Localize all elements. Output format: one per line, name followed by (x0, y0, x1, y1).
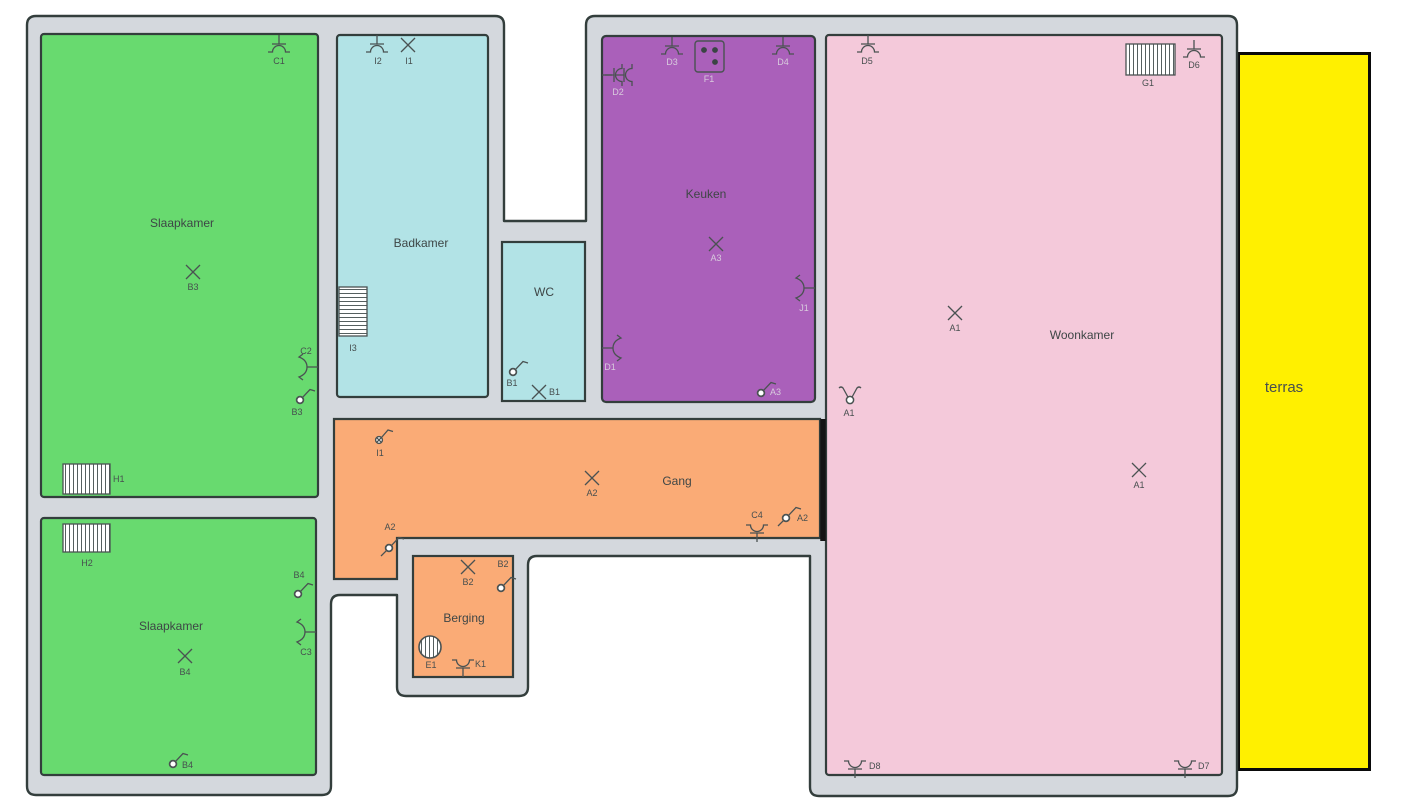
svg-text:D1: D1 (604, 362, 616, 372)
svg-text:WC: WC (534, 285, 554, 299)
svg-text:D8: D8 (869, 761, 881, 771)
svg-text:A2: A2 (384, 522, 395, 532)
svg-text:I2: I2 (374, 56, 382, 66)
svg-text:B3: B3 (291, 407, 302, 417)
svg-text:A3: A3 (710, 253, 721, 263)
svg-text:D4: D4 (777, 57, 789, 67)
svg-text:Woonkamer: Woonkamer (1050, 328, 1114, 342)
svg-text:B2: B2 (462, 577, 473, 587)
svg-text:K1: K1 (475, 659, 486, 669)
svg-text:A1: A1 (949, 323, 960, 333)
svg-text:D2: D2 (612, 87, 624, 97)
svg-text:Slaapkamer: Slaapkamer (150, 216, 214, 230)
svg-text:H2: H2 (81, 558, 93, 568)
svg-text:terras: terras (1265, 379, 1303, 396)
svg-text:J1: J1 (799, 303, 809, 313)
svg-text:B1: B1 (549, 387, 560, 397)
svg-text:Badkamer: Badkamer (394, 236, 449, 250)
svg-text:Gang: Gang (662, 474, 691, 488)
svg-text:D6: D6 (1188, 60, 1200, 70)
svg-text:C1: C1 (273, 56, 285, 66)
svg-text:B1: B1 (506, 378, 517, 388)
svg-text:B4: B4 (179, 667, 190, 677)
svg-text:E1: E1 (425, 660, 436, 670)
svg-text:Berging: Berging (443, 611, 484, 625)
svg-text:Slaapkamer: Slaapkamer (139, 619, 203, 633)
svg-text:G1: G1 (1142, 78, 1154, 88)
svg-text:F1: F1 (704, 74, 715, 84)
svg-text:B3: B3 (187, 282, 198, 292)
svg-text:I3: I3 (349, 343, 357, 353)
svg-text:D5: D5 (861, 56, 873, 66)
svg-text:C2: C2 (300, 346, 312, 356)
svg-text:A2: A2 (586, 488, 597, 498)
svg-text:I1: I1 (376, 448, 384, 458)
svg-text:A2: A2 (797, 513, 808, 523)
svg-text:H1: H1 (113, 474, 125, 484)
svg-text:C3: C3 (300, 647, 312, 657)
svg-text:A3: A3 (770, 387, 781, 397)
svg-text:A1: A1 (1133, 480, 1144, 490)
svg-text:D3: D3 (666, 57, 678, 67)
svg-text:I1: I1 (405, 56, 413, 66)
svg-text:B4: B4 (182, 760, 193, 770)
svg-text:B4: B4 (293, 570, 304, 580)
svg-text:Keuken: Keuken (686, 187, 727, 201)
svg-text:D7: D7 (1198, 761, 1210, 771)
svg-text:C4: C4 (751, 510, 763, 520)
svg-text:A1: A1 (843, 408, 854, 418)
svg-text:B2: B2 (497, 559, 508, 569)
